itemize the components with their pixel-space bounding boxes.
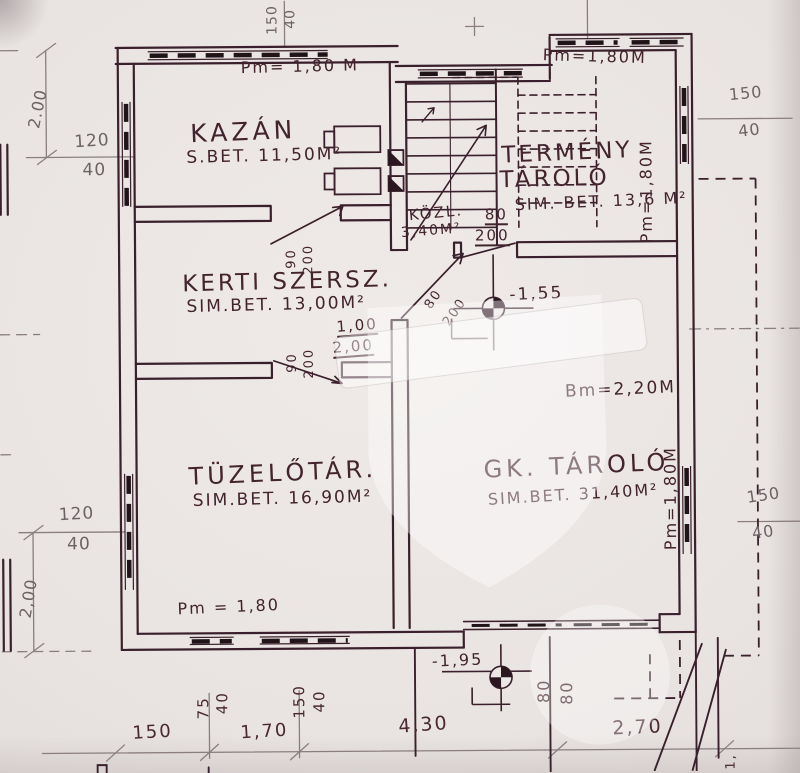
height-note-top-right: Pm=1,80M [542,47,646,66]
height-note-bm: Bm=2,20M [565,379,677,401]
room-area-kerti-szersz: SIM.BET. 13,00M² [186,295,366,316]
dim-left-lower-window: 120 [58,505,94,524]
room-label-tuzelotar: TÜZELŐTÁR. [188,457,377,489]
door-dim-width-stair: 80 [485,207,508,225]
door-dim-width-mid: 1,00 [336,317,379,338]
dim-right-upper-window: 150 [728,84,763,103]
dim-bottom-2: 1,70 [240,722,289,743]
room-area-kazan: S.BET. 11,50M² [186,146,342,167]
dim-left-upper-window: 120 [74,132,110,151]
floorplan: Pm= 1,80 M Pm=1,80M KAZÁN S.BET. 11,50M²… [0,0,800,773]
dim-right-upper-sill: 40 [737,121,761,139]
room-label-gk-tarolo: GK. TÁROLÓ [483,450,670,482]
dim-top-edge-sill: 40 [283,9,297,29]
dim-bottom-small-window: 75 [196,696,211,719]
door-dim-garage-b: 80 [559,680,575,704]
level-value-lower: -1,95 [432,652,484,670]
room-label-kazan: KAZÁN [190,117,297,146]
door-dim-height-upper: 200 [302,244,315,275]
dim-top-edge-window: 150 [265,5,279,35]
floorplan-drawing [0,0,800,773]
dim-left-lower-sill: 40 [67,536,91,553]
dim-left-upper-sill: 40 [82,162,106,179]
height-note-top-left: Pm= 1,80 M [241,57,360,76]
door-dim-height-stair: 200 [475,228,510,246]
door-dim-width-lower: 90 [286,352,299,373]
room-label-termeny-2: TÁROLÓ [499,167,610,193]
dim-bottom-large-sill: 40 [312,689,327,712]
level-value-mid: -1,55 [509,285,564,304]
dim-bottom-4: 2,70 [612,717,663,738]
dim-bottom-3: 4,30 [398,714,450,737]
height-note-bottom: Pm = 1,80 [177,597,280,617]
dim-corner-note: 1, [725,753,738,769]
dim-bottom-1: 150 [132,723,173,743]
room-label-termeny-1: TERMÉNY [501,139,633,167]
door-dim-width-upper: 90 [285,248,298,269]
driveway-lines [97,632,727,773]
dim-bottom-small-sill: 40 [215,691,230,714]
door-dim-height-mid: 2,00 [332,338,375,359]
door-dim-garage-a: 80 [536,679,552,703]
scanned-floorplan-page: Pm= 1,80 M Pm=1,80M KAZÁN S.BET. 11,50M²… [0,0,800,773]
height-note-right-lower: Pm=1,80M [662,446,679,550]
height-note-right-upper: Pm=1,80M [638,139,655,243]
dim-right-lower-window: 150 [746,485,782,506]
dim-right-lower-sill: 40 [751,523,775,542]
dim-bottom-large-window: 150 [292,684,307,719]
room-area-tuzelotar: SIM.BET. 16,90M² [193,489,373,510]
door-dim-height-lower: 200 [303,348,316,379]
